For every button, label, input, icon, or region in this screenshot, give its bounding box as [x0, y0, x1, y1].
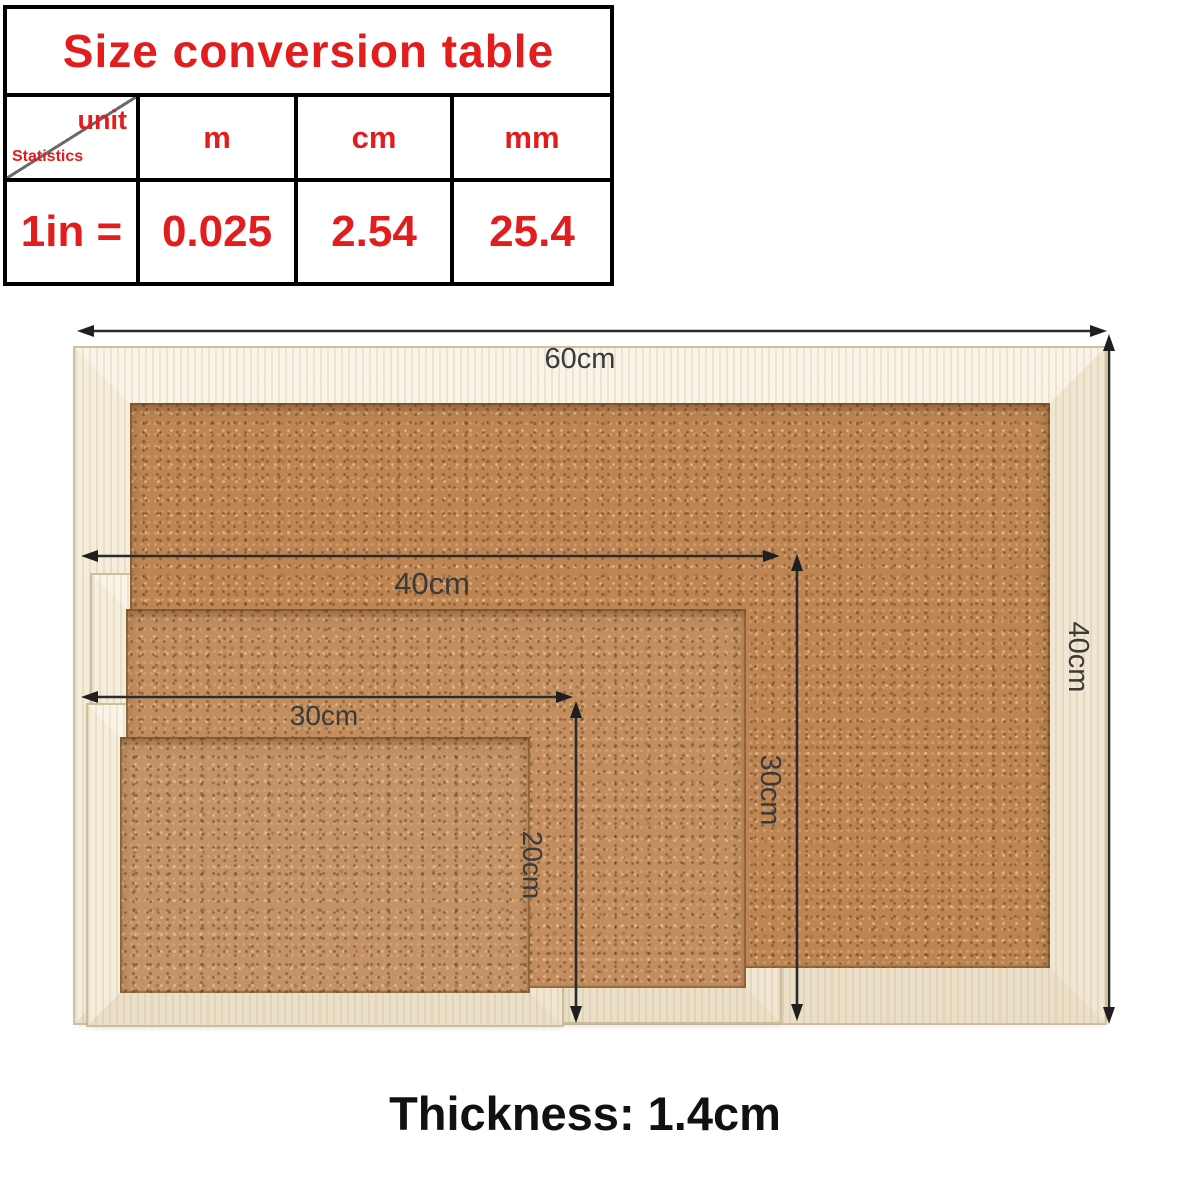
dimension-label-60cm: 60cm — [520, 343, 640, 376]
dimension-arrow-60cm-horizontal — [76, 322, 1108, 340]
column-header-mm: mm — [454, 97, 610, 178]
dimension-arrow-40cm-horizontal-medium — [80, 547, 781, 565]
dimension-label-20cm-vertical: 20cm — [516, 810, 548, 920]
dimension-arrow-30cm-vertical-medium — [788, 553, 806, 1022]
column-header-cm: cm — [298, 97, 454, 178]
unit-label: unit — [78, 105, 127, 136]
value-cm-cell: 2.54 — [298, 182, 454, 282]
column-header-m: m — [140, 97, 298, 178]
value-m-cell: 0.025 — [140, 182, 298, 282]
row-label-cell: 1in = — [7, 182, 140, 282]
table-corner-cell: unit Statistics — [7, 97, 140, 178]
table-header-row: unit Statistics m cm mm — [7, 97, 610, 182]
cork-board-30x20 — [88, 705, 562, 1025]
dimension-label-30cm-horizontal: 30cm — [264, 700, 384, 732]
table-data-row: 1in = 0.025 2.54 25.4 — [7, 182, 610, 282]
table-title: Size conversion table — [7, 9, 610, 97]
thickness-caption: Thickness: 1.4cm — [185, 1086, 985, 1141]
dimension-label-40cm-horizontal: 40cm — [372, 566, 492, 602]
dimension-label-40cm-vertical: 40cm — [1062, 602, 1094, 712]
size-conversion-table: Size conversion table unit Statistics m … — [3, 5, 614, 286]
dimension-arrow-40cm-vertical-large — [1100, 333, 1118, 1025]
dimension-arrow-20cm-vertical-small — [567, 700, 585, 1024]
dimension-label-30cm-vertical: 30cm — [754, 735, 786, 845]
value-mm-cell: 25.4 — [454, 182, 610, 282]
cork-surface-small — [120, 737, 530, 993]
product-infographic: Size conversion table unit Statistics m … — [0, 0, 1200, 1200]
statistics-label: Statistics — [12, 148, 83, 166]
